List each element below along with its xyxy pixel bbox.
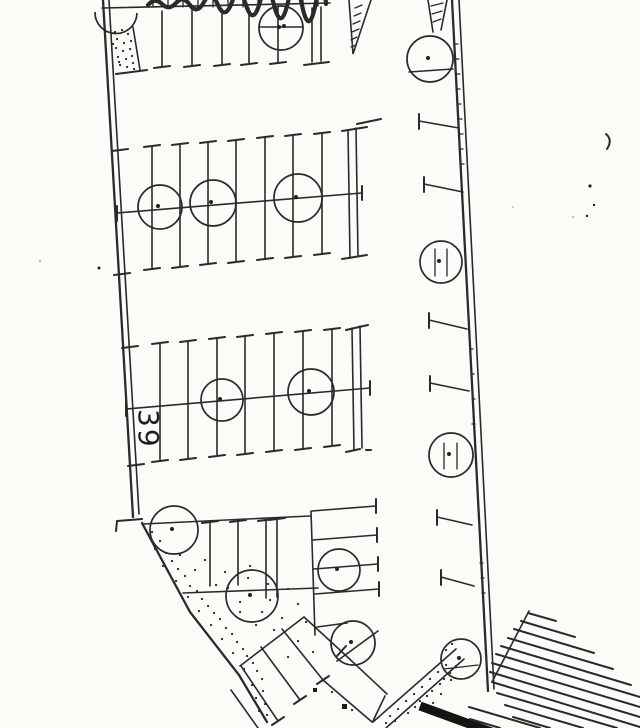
parking-row-bottom (143, 516, 318, 598)
tree-center-dot (248, 593, 252, 597)
left-road-edge (103, 0, 142, 531)
stipple-strip-top-left (113, 30, 134, 69)
corner-tree-arc (95, 12, 137, 34)
tree-center-dot (170, 527, 174, 531)
tree-center-dot (156, 204, 160, 208)
tree-center-dot (426, 56, 430, 60)
tree-symbol (420, 241, 462, 283)
stipple-diagonal-bed (152, 532, 352, 715)
tree-symbol (190, 180, 236, 226)
triangular-island-hatched (349, 0, 453, 72)
tree-symbol (407, 36, 453, 82)
tree-center-dot (218, 397, 222, 401)
tree-center-dot (335, 567, 339, 571)
tree-center-dot (294, 195, 298, 199)
tree-center-dot (349, 640, 353, 644)
tree-symbol (150, 506, 198, 554)
parking-row-top (116, 7, 329, 74)
stall-count-label: 39 (132, 409, 165, 449)
tree-chords (282, 24, 286, 28)
tree-symbol (318, 549, 360, 591)
scan-specks (39, 134, 610, 270)
tree-center-dot (457, 656, 461, 660)
tree-center-dot (307, 389, 311, 393)
right-road-edge (452, 0, 494, 691)
tree-symbol (441, 639, 481, 679)
site-plan-drawing: 39 (0, 0, 640, 728)
dark-edge-bar (420, 706, 497, 728)
parking-row-a (112, 119, 381, 275)
tree-symbol (138, 185, 182, 229)
tree-symbol (226, 570, 278, 622)
angled-parking-stalls (231, 617, 387, 728)
tree-center-dot (209, 200, 213, 204)
top-boundary (95, 0, 330, 34)
row-a-aisle-line (117, 193, 362, 213)
tree-center-dot (447, 452, 451, 456)
tree-symbol (429, 433, 473, 477)
tree-center-dot (277, 25, 281, 29)
tree-center-dot (437, 259, 441, 263)
hatch-lines (469, 613, 640, 728)
tree-symbol (259, 6, 303, 50)
tree-symbol (331, 621, 375, 665)
trees (138, 6, 481, 679)
scanned-site-plan-page: 39 (0, 0, 640, 728)
